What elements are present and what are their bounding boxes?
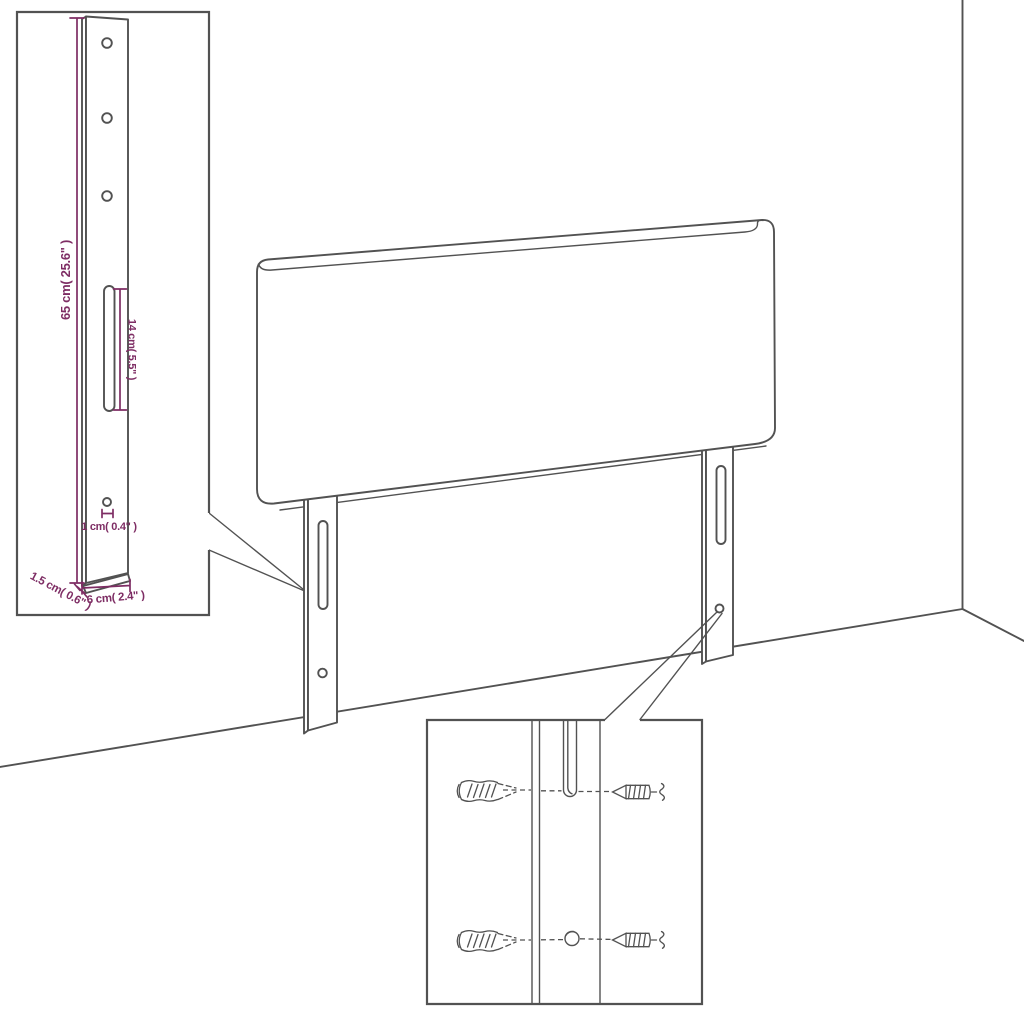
bracket-slot <box>104 286 115 411</box>
headboard-left-leg <box>304 485 337 734</box>
height-dimension-label: 65 cm( 25.6" ) <box>58 240 73 320</box>
bracket-small-hole <box>103 498 111 506</box>
callout-line <box>640 614 722 720</box>
bracket-hole <box>102 191 112 201</box>
hardware-detail-inset <box>427 720 702 1004</box>
bracket-hole <box>102 113 112 123</box>
panel-front-face <box>257 220 775 504</box>
left-leg-hole <box>318 669 327 678</box>
left-leg-slot <box>319 521 328 609</box>
callout-line <box>209 550 304 591</box>
inset-box-border <box>427 720 702 1004</box>
assembly-diagram-page: 65 cm( 25.6" ) 14 cm( 5.5" ) 1 cm( 0.4" … <box>0 0 1024 1024</box>
headboard-right-leg <box>702 441 733 664</box>
leg-bracket-drawing <box>82 17 130 594</box>
right-leg-slot <box>717 466 726 544</box>
leg-detail-callout-lines <box>209 513 304 591</box>
assembly-diagram: 65 cm( 25.6" ) 14 cm( 5.5" ) 1 cm( 0.4" … <box>0 0 1024 1024</box>
callout-line <box>209 513 304 590</box>
floor-line-right <box>963 609 1024 641</box>
right-leg-hole <box>716 605 724 613</box>
headboard-panel <box>257 220 775 504</box>
leg-detail-inset: 65 cm( 25.6" ) 14 cm( 5.5" ) 1 cm( 0.4" … <box>17 12 209 615</box>
bracket-hole <box>102 38 112 48</box>
slot-dimension-label: 14 cm( 5.5" ) <box>126 319 138 381</box>
hole-dimension-label: 1 cm( 0.4" ) <box>81 521 137 533</box>
